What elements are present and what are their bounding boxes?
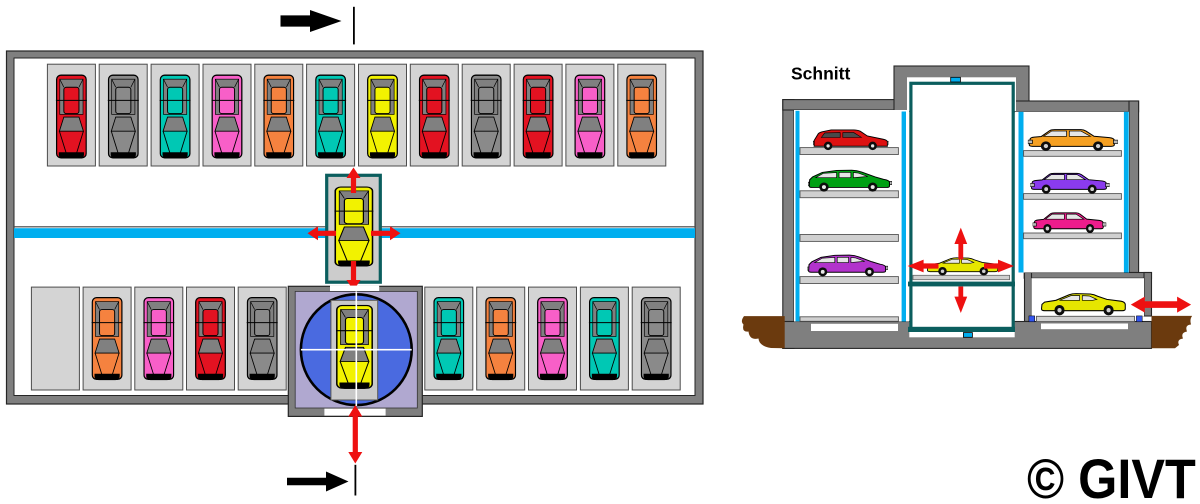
svg-text:© GIVT: © GIVT bbox=[1027, 449, 1196, 504]
svg-text:Schnitt: Schnitt bbox=[791, 64, 850, 84]
